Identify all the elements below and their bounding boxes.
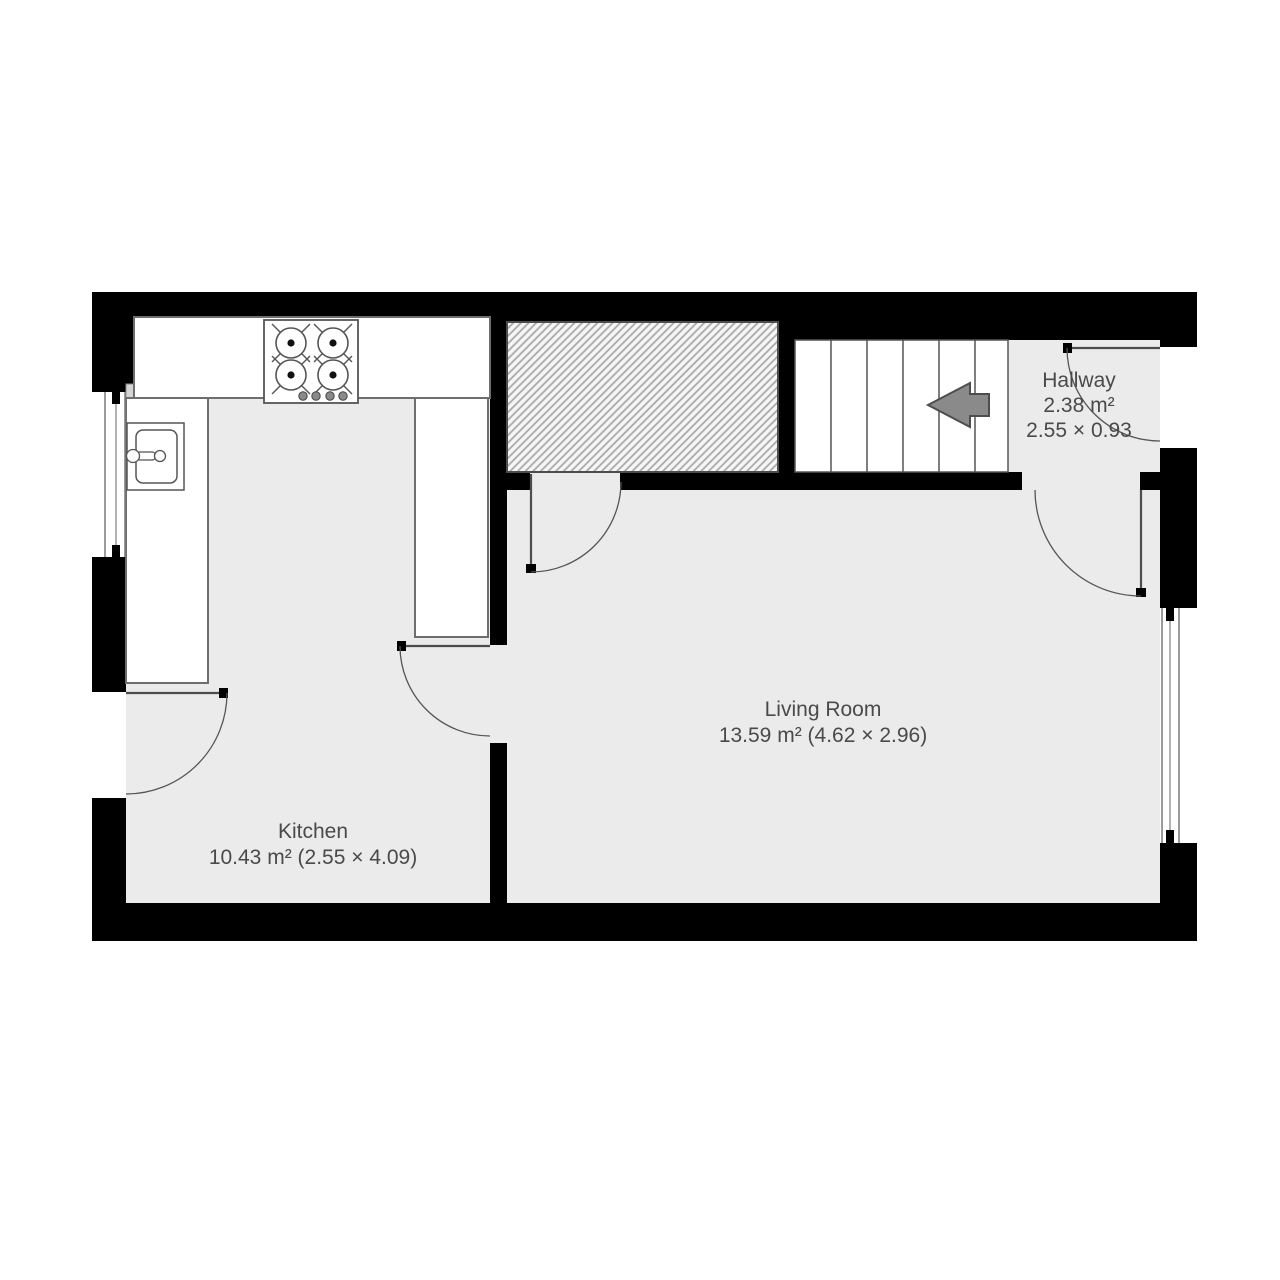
door-leaf-end bbox=[397, 641, 406, 651]
sink-tap bbox=[155, 451, 166, 462]
window-sill-tick bbox=[112, 392, 120, 404]
kitchen-living-door-opening bbox=[490, 645, 507, 743]
left-window-opening bbox=[91, 392, 126, 557]
stove-burner bbox=[272, 356, 310, 394]
sink-icon bbox=[127, 423, 185, 490]
corner-wall-block bbox=[92, 292, 134, 392]
kitchen-counter-right bbox=[415, 398, 488, 637]
hallway-label: Hallway bbox=[1042, 369, 1116, 392]
back-door-opening bbox=[91, 692, 126, 798]
stove-burner bbox=[272, 324, 310, 362]
window-sill-tick bbox=[1166, 830, 1174, 843]
stove-burner bbox=[314, 324, 352, 362]
stove-icon bbox=[264, 320, 358, 403]
hallway-area: 2.38 m² bbox=[1043, 394, 1114, 417]
hatched-void-area bbox=[507, 322, 778, 472]
void-door-opening bbox=[530, 472, 620, 491]
stove-burner bbox=[314, 356, 352, 394]
window-sill-tick bbox=[1166, 608, 1174, 621]
floor-plan: Kitchen 10.43 m² (2.55 × 4.09) Living Ro… bbox=[0, 0, 1280, 1280]
window-sill-tick bbox=[112, 545, 120, 557]
living-room-label: Living Room bbox=[765, 698, 882, 721]
staircase bbox=[795, 340, 1008, 472]
living-room-floor bbox=[507, 490, 1160, 903]
front-door-opening bbox=[1160, 347, 1198, 448]
floor-plan-page: Kitchen 10.43 m² (2.55 × 4.09) Living Ro… bbox=[0, 0, 1280, 1280]
void-hatching bbox=[507, 322, 778, 472]
hallway-size: 2.55 × 0.93 bbox=[1026, 419, 1132, 442]
kitchen-label: Kitchen bbox=[278, 820, 348, 843]
hallway-living-door-opening bbox=[1022, 472, 1140, 491]
kitchen-dimensions: 10.43 m² (2.55 × 4.09) bbox=[209, 846, 417, 869]
sink-tap-handle bbox=[127, 450, 140, 463]
living-room-dimensions: 13.59 m² (4.62 × 2.96) bbox=[719, 724, 927, 747]
